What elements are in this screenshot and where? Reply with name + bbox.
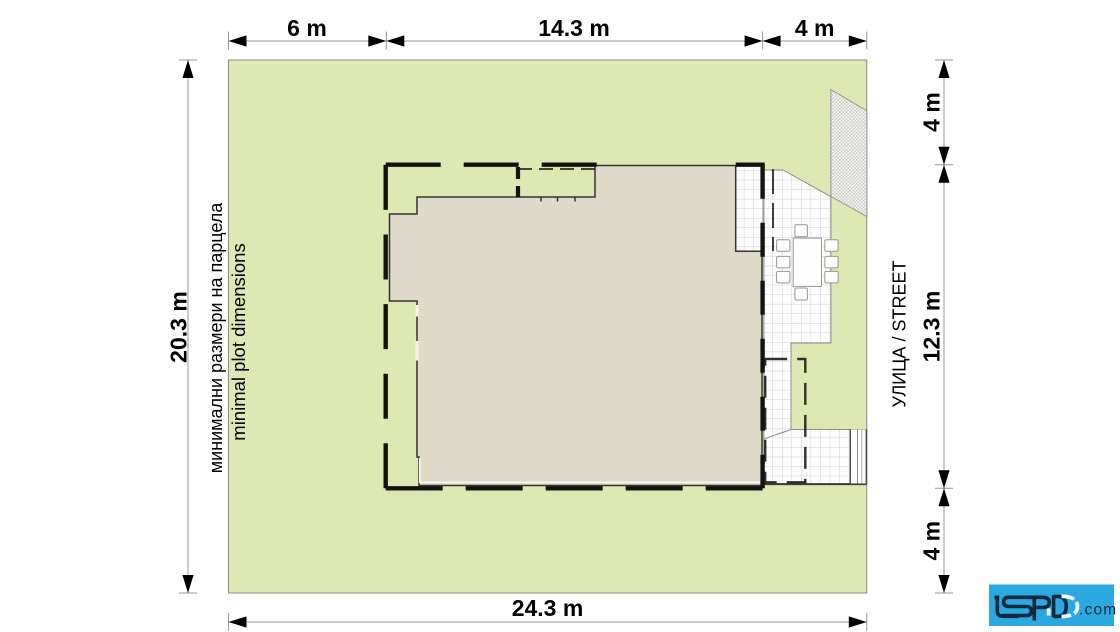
svg-text:минимални размери на парцела: минимални размери на парцела [206, 202, 226, 474]
svg-text:6 m: 6 m [287, 15, 327, 41]
svg-text:20.3 m: 20.3 m [166, 291, 192, 363]
svg-text:minimal plot dimensions: minimal plot dimensions [228, 243, 249, 440]
svg-text:УЛИЦА / STREET: УЛИЦА / STREET [890, 261, 910, 408]
svg-text:4 m: 4 m [795, 15, 835, 41]
svg-text:12.3 m: 12.3 m [919, 291, 945, 363]
svg-text:4 m: 4 m [919, 92, 945, 132]
svg-text:.com: .com [1079, 602, 1117, 619]
svg-text:4 m: 4 m [919, 521, 945, 561]
svg-text:24.3 m: 24.3 m [512, 595, 584, 621]
svg-text:14.3 m: 14.3 m [538, 15, 610, 41]
